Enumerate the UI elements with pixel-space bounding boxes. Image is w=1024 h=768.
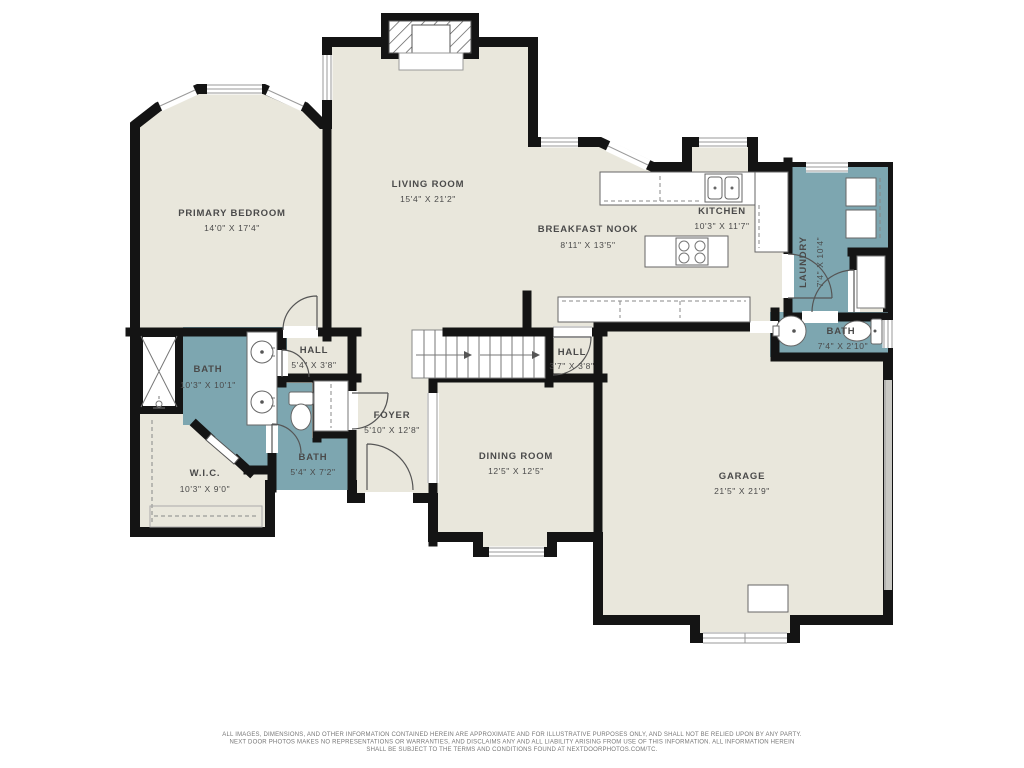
svg-text:BATH: BATH: [194, 364, 223, 375]
svg-text:10'3" X 11'7": 10'3" X 11'7": [694, 221, 749, 231]
powder-sink: [776, 316, 806, 346]
svg-text:W.I.C.: W.I.C.: [190, 468, 221, 479]
svg-text:14'0" X 17'4": 14'0" X 17'4": [204, 223, 260, 233]
hall-bath-fixtures: [289, 392, 313, 430]
disclaimer-line-2: NEXT DOOR PHOTOS MAKES NO REPRESENTATION…: [229, 740, 794, 746]
fireplace-firebox: [412, 25, 450, 53]
svg-text:7'4" X 2'10": 7'4" X 2'10": [818, 341, 869, 351]
utility-unit: [748, 585, 788, 612]
svg-text:HALL: HALL: [300, 345, 329, 356]
powder-door-gap: [802, 311, 838, 323]
svg-text:21'5" X 21'9": 21'5" X 21'9": [714, 486, 770, 496]
kitchen-island: [645, 236, 728, 267]
kitchen-sink-window: [699, 138, 747, 146]
kitchen-sink: [705, 174, 742, 202]
svg-text:FOYER: FOYER: [374, 410, 411, 421]
bay-window-center: [207, 85, 262, 93]
hall-bath-toilet-tank: [289, 392, 313, 405]
svg-text:DINING ROOM: DINING ROOM: [479, 451, 553, 462]
laundry-closet: [857, 256, 885, 308]
floor-plan: PRIMARY BEDROOM 14'0" X 17'4" LIVING ROO…: [0, 0, 1024, 768]
svg-text:10'3" X 9'0": 10'3" X 9'0": [180, 484, 231, 494]
garage-door-front: [703, 633, 787, 643]
disclaimer-line-3: SHALL BE SUBJECT TO THE TERMS AND CONDIT…: [366, 747, 657, 753]
washer: [846, 178, 876, 206]
bedroom-door-gap: [283, 326, 318, 338]
laundry-window: [806, 163, 848, 171]
svg-text:LAUNDRY: LAUNDRY: [798, 236, 809, 288]
dining-bay-window: [489, 548, 544, 556]
fireplace-hearth: [399, 53, 463, 70]
nook-north-window: [541, 138, 578, 146]
svg-text:PRIMARY BEDROOM: PRIMARY BEDROOM: [178, 208, 286, 219]
garage-door-side: [885, 380, 888, 590]
svg-text:10'3" X 10'1": 10'3" X 10'1": [180, 380, 236, 390]
powder-toilet-tank: [871, 319, 882, 344]
powder-bath-window: [884, 320, 892, 348]
dryer: [846, 210, 876, 238]
hall-bath-toilet-bowl: [291, 404, 311, 430]
hall2-opening: [553, 326, 592, 338]
svg-text:GARAGE: GARAGE: [719, 471, 766, 482]
svg-text:HALL: HALL: [558, 347, 587, 358]
svg-text:5'4" X 3'8": 5'4" X 3'8": [291, 360, 336, 370]
disclaimer: ALL IMAGES, DIMENSIONS, AND OTHER INFORM…: [222, 732, 802, 753]
svg-text:8'11" X 13'5": 8'11" X 13'5": [560, 240, 615, 250]
laundry-door-gap: [782, 254, 794, 298]
svg-text:BATH: BATH: [827, 326, 856, 337]
svg-text:BATH: BATH: [299, 452, 328, 463]
svg-text:7'4" X 10'4": 7'4" X 10'4": [815, 237, 825, 288]
front-door-gap: [365, 492, 413, 504]
svg-text:KITCHEN: KITCHEN: [698, 206, 746, 217]
svg-text:BREAKFAST NOOK: BREAKFAST NOOK: [538, 224, 638, 235]
svg-text:3'7" X 3'8": 3'7" X 3'8": [549, 361, 594, 371]
staircase: [412, 330, 549, 378]
living-west-window: [323, 55, 331, 100]
garage-fixtures: [748, 585, 788, 612]
svg-text:5'4" X 7'2": 5'4" X 7'2": [290, 467, 335, 477]
svg-text:LIVING ROOM: LIVING ROOM: [392, 179, 465, 190]
kitchen-counter-east: [755, 172, 788, 252]
svg-text:12'5" X 12'5": 12'5" X 12'5": [488, 466, 544, 476]
svg-text:15'4" X 21'2": 15'4" X 21'2": [400, 194, 456, 204]
disclaimer-line-1: ALL IMAGES, DIMENSIONS, AND OTHER INFORM…: [222, 732, 802, 738]
svg-text:5'10" X 12'8": 5'10" X 12'8": [364, 425, 420, 435]
